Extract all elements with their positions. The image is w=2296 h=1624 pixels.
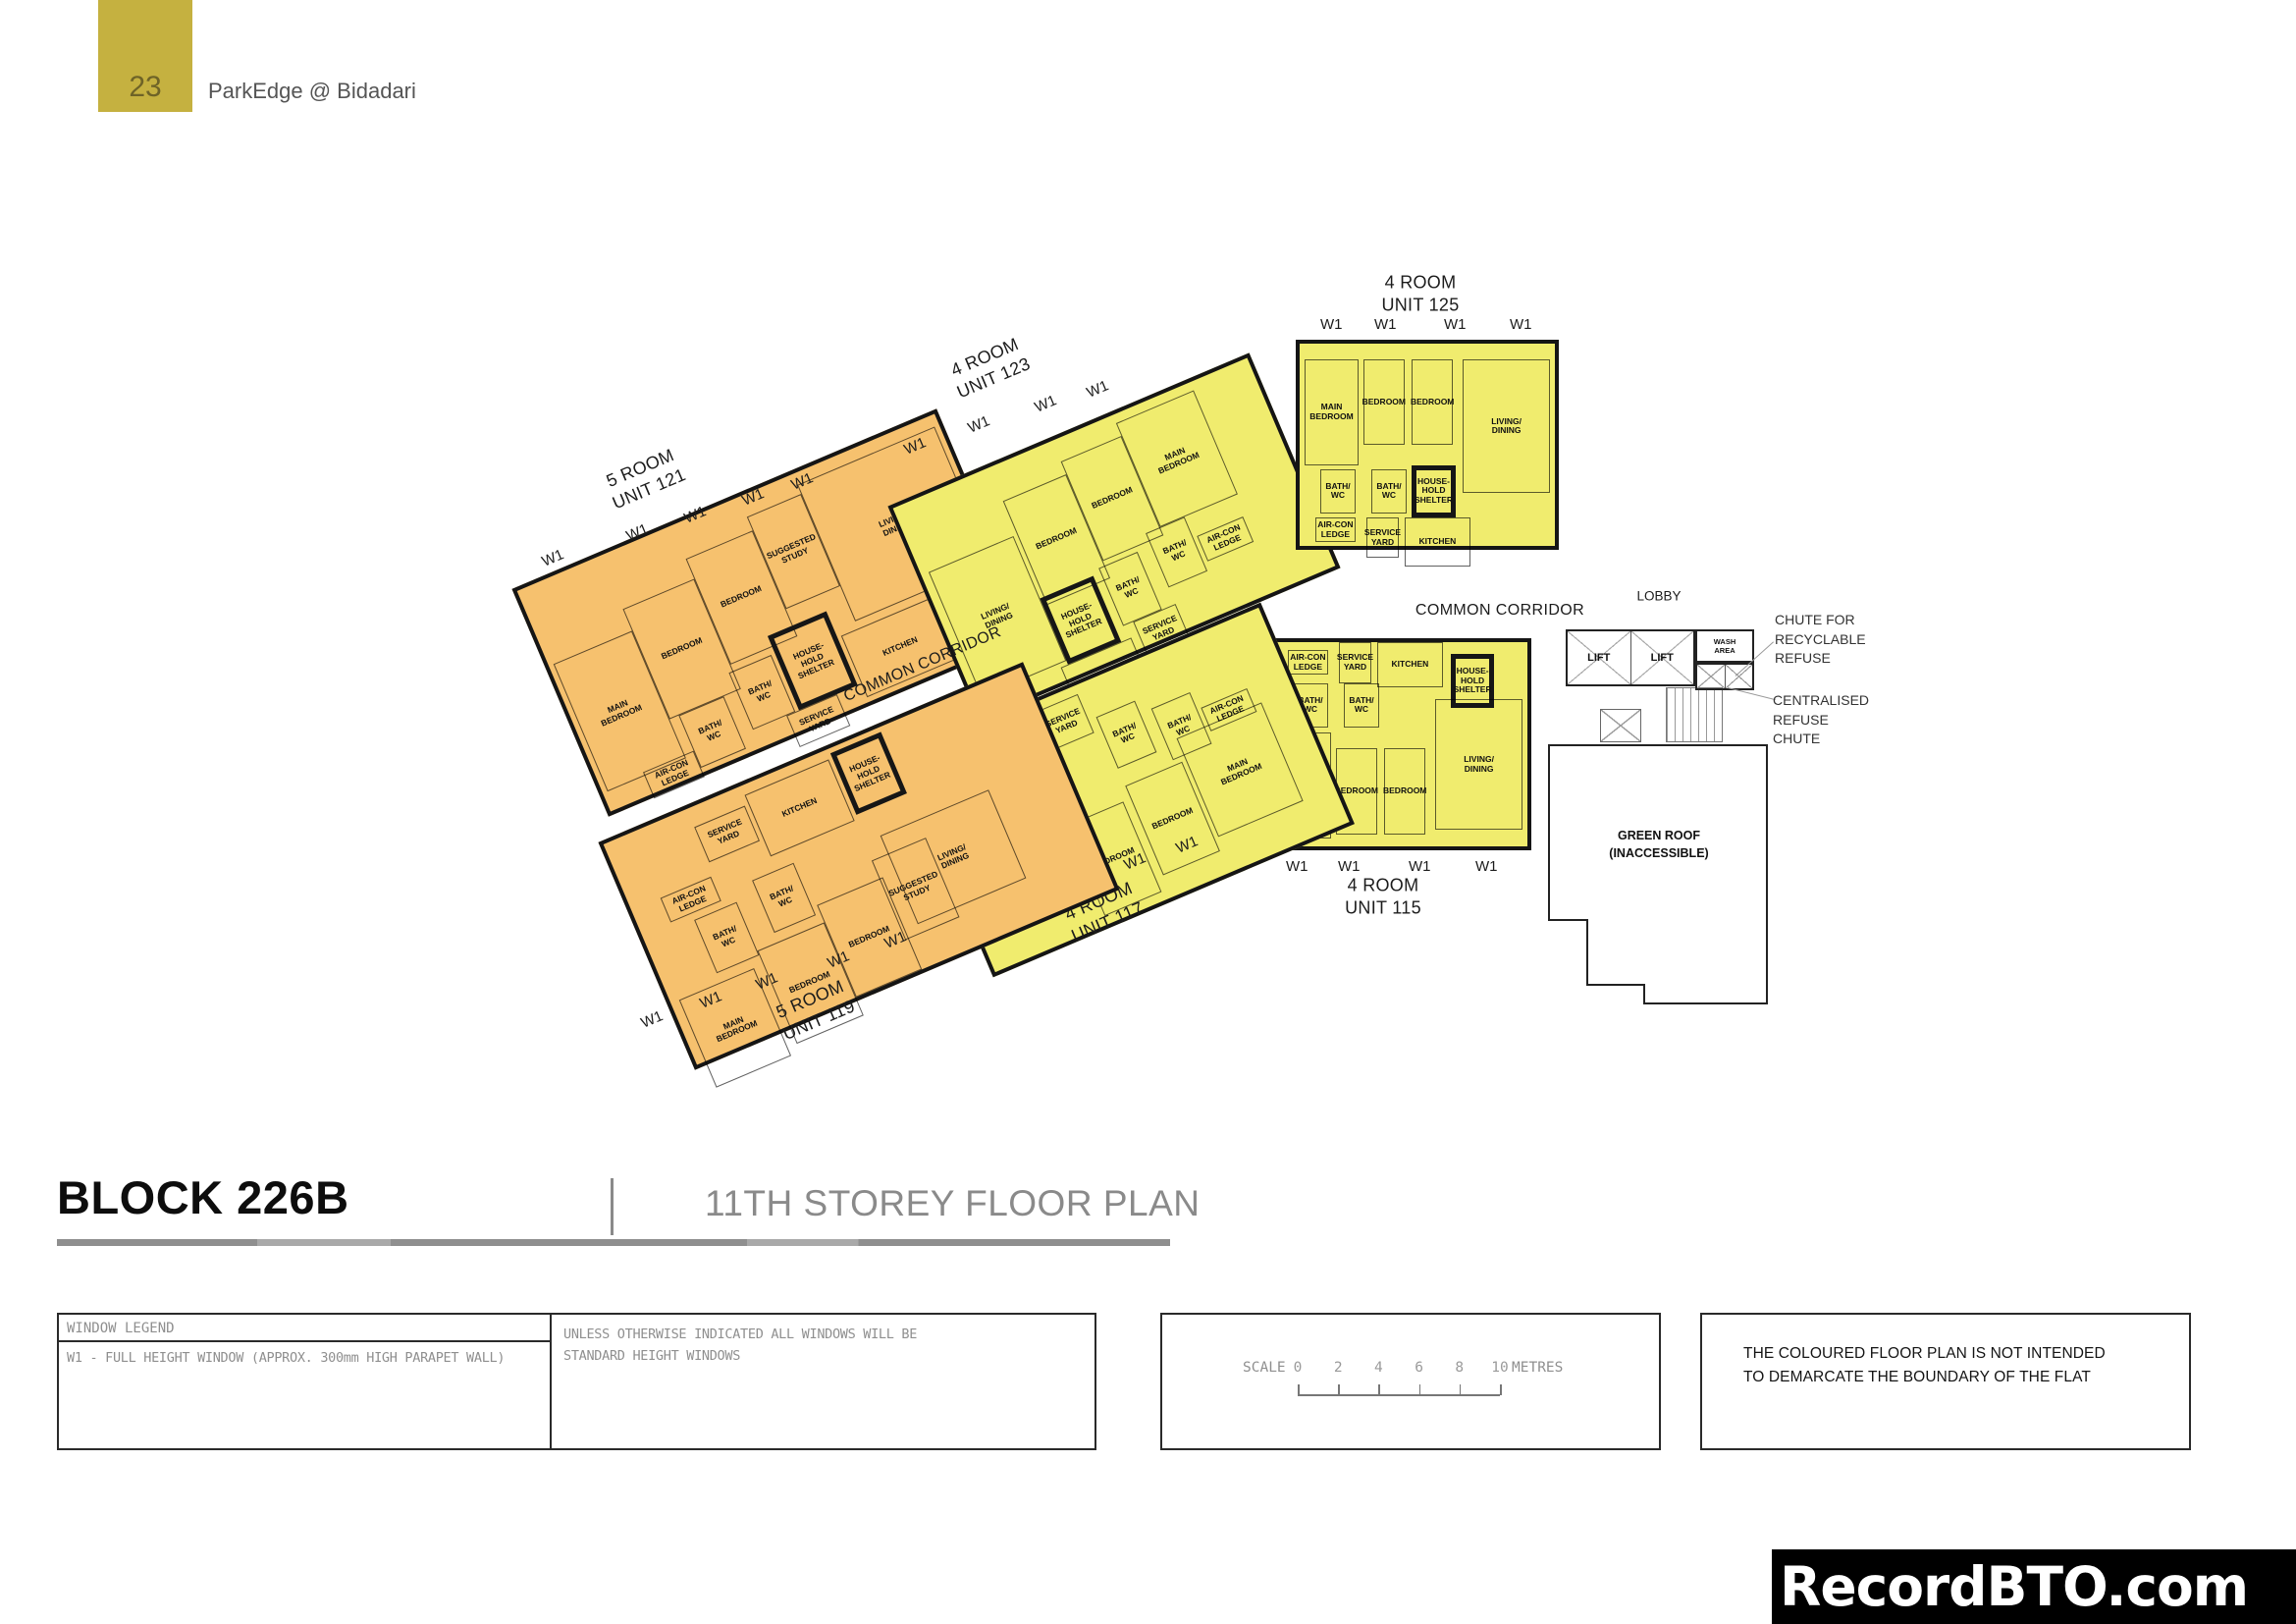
room-label: AIR-CON LEDGE <box>1288 650 1329 675</box>
unit-123-label: 4 ROOM UNIT 123 <box>944 332 1034 405</box>
scale-tick-label: 8 <box>1455 1360 1464 1376</box>
room-label: BATH/ WC <box>1320 469 1356 514</box>
unit-125-outline: MAIN BEDROOMBEDROOMBEDROOMLIVING/ DINING… <box>1296 340 1559 550</box>
page-number-tab: 23 <box>98 0 192 112</box>
window-legend-entry: W1 - FULL HEIGHT WINDOW (APPROX. 300mm H… <box>59 1342 550 1366</box>
scale-tick-label: 2 <box>1334 1360 1343 1376</box>
watermark-banner: RecordBTO.com <box>1772 1549 2296 1624</box>
room-label: BATH/ WC <box>695 902 759 973</box>
chute-cell-icon <box>1726 665 1753 688</box>
storey-title: 11TH STOREY FLOOR PLAN <box>705 1183 1200 1224</box>
room-label: MAIN BEDROOM <box>1305 359 1359 464</box>
centralised-refuse-chute-note: CENTRALISED REFUSE CHUTE <box>1773 691 1869 749</box>
room-label: SERVICE YARD <box>694 805 759 862</box>
scale-tick <box>1419 1384 1421 1395</box>
lift-block: LIFT LIFT <box>1566 629 1695 686</box>
room-label: BEDROOM <box>1412 359 1453 445</box>
window-tag-w1: W1 <box>1475 858 1498 875</box>
window-tag-w1: W1 <box>966 412 992 436</box>
common-corridor-label: COMMON CORRIDOR <box>1415 602 1584 620</box>
unit-115-label: 4 ROOM UNIT 115 <box>1345 875 1421 921</box>
recyclable-chute-note: CHUTE FOR RECYCLABLE REFUSE <box>1775 611 1866 669</box>
room-label: LIVING/ DINING <box>1463 359 1549 493</box>
room-label: AIR-CON LEDGE <box>1315 517 1357 542</box>
room-label: BEDROOM <box>1363 359 1405 445</box>
scale-tick <box>1500 1384 1502 1395</box>
window-tag-w1: W1 <box>1374 316 1397 333</box>
page-number: 23 <box>129 71 161 104</box>
room-label: LIVING/ DINING <box>1435 699 1522 830</box>
lift-1: LIFT <box>1568 631 1631 684</box>
green-roof-label: GREEN ROOF (INACCESSIBLE) <box>1609 827 1708 862</box>
window-tag-w1: W1 <box>1085 377 1111 401</box>
title-separator <box>611 1178 614 1235</box>
room-label: SERVICE YARD <box>1366 517 1400 558</box>
unit-125-label: 4 ROOM UNIT 125 <box>1381 272 1459 318</box>
window-legend-box: WINDOW LEGEND W1 - FULL HEIGHT WINDOW (A… <box>57 1313 1096 1450</box>
chute-cell-icon <box>1697 665 1726 688</box>
scale-label: SCALE <box>1243 1360 1286 1376</box>
window-tag-w1: W1 <box>1320 316 1343 333</box>
room-label: KITCHEN <box>745 759 855 856</box>
lobby-label: LOBBY <box>1636 589 1681 604</box>
scale-box <box>1160 1313 1661 1450</box>
project-name: ParkEdge @ Bidadari <box>208 79 416 104</box>
windows-note: UNLESS OTHERWISE INDICATED ALL WINDOWS W… <box>552 1315 1095 1448</box>
scale-bar <box>1298 1394 1500 1396</box>
room-label: SERVICE YARD <box>1339 642 1372 683</box>
scale-tick <box>1338 1384 1340 1395</box>
boundary-note: THE COLOURED FLOOR PLAN IS NOT INTENDED … <box>1700 1313 2191 1450</box>
room-label: KITCHEN <box>1405 517 1471 566</box>
window-tag-w1: W1 <box>1409 858 1431 875</box>
room-label: KITCHEN <box>1377 642 1444 687</box>
scale-tick <box>1298 1384 1300 1395</box>
room-label: HOUSE-HOLD SHELTER <box>1412 465 1455 518</box>
block-title: BLOCK 226B <box>57 1170 349 1224</box>
window-legend-header: WINDOW LEGEND <box>59 1315 550 1342</box>
lift-2: LIFT <box>1631 631 1694 684</box>
window-legend-cell: WINDOW LEGEND W1 - FULL HEIGHT WINDOW (A… <box>59 1315 552 1448</box>
scale-tick-label: 6 <box>1415 1360 1423 1376</box>
scale-unit: METRES <box>1512 1360 1563 1376</box>
scale-tick <box>1378 1384 1380 1395</box>
unit-121-label: 5 ROOM UNIT 121 <box>600 443 689 515</box>
window-tag-w1: W1 <box>1444 316 1467 333</box>
room-label: BATH/ WC <box>1344 683 1379 729</box>
scale-tick-label: 10 <box>1491 1360 1508 1376</box>
wash-area: WASH AREA <box>1695 629 1754 663</box>
scale-tick-label: 4 <box>1374 1360 1383 1376</box>
room-label: BATH/ WC <box>1371 469 1407 514</box>
window-tag-w1: W1 <box>1286 858 1308 875</box>
window-tag-w1: W1 <box>1033 392 1059 415</box>
room-label: BATH/ WC <box>1096 700 1157 768</box>
scale-tick <box>1460 1384 1462 1395</box>
watermark-text: RecordBTO.com <box>1780 1555 2248 1618</box>
window-tag-w1: W1 <box>639 1007 666 1031</box>
room-label: BATH/ WC <box>752 863 816 934</box>
room-label: BEDROOM <box>1384 748 1425 834</box>
window-tag-w1: W1 <box>1510 316 1532 333</box>
floor-plan-page: 23 ParkEdge @ Bidadari LOBBY LIFT LIFT W… <box>0 0 2296 1624</box>
lobby-staircase-icon <box>1666 687 1723 742</box>
window-tag-w1: W1 <box>1338 858 1361 875</box>
service-duct-icon <box>1600 709 1641 742</box>
scale-tick-label: 0 <box>1294 1360 1303 1376</box>
room-label: AIR-CON LEDGE <box>1198 516 1255 561</box>
title-underline <box>57 1239 1170 1246</box>
